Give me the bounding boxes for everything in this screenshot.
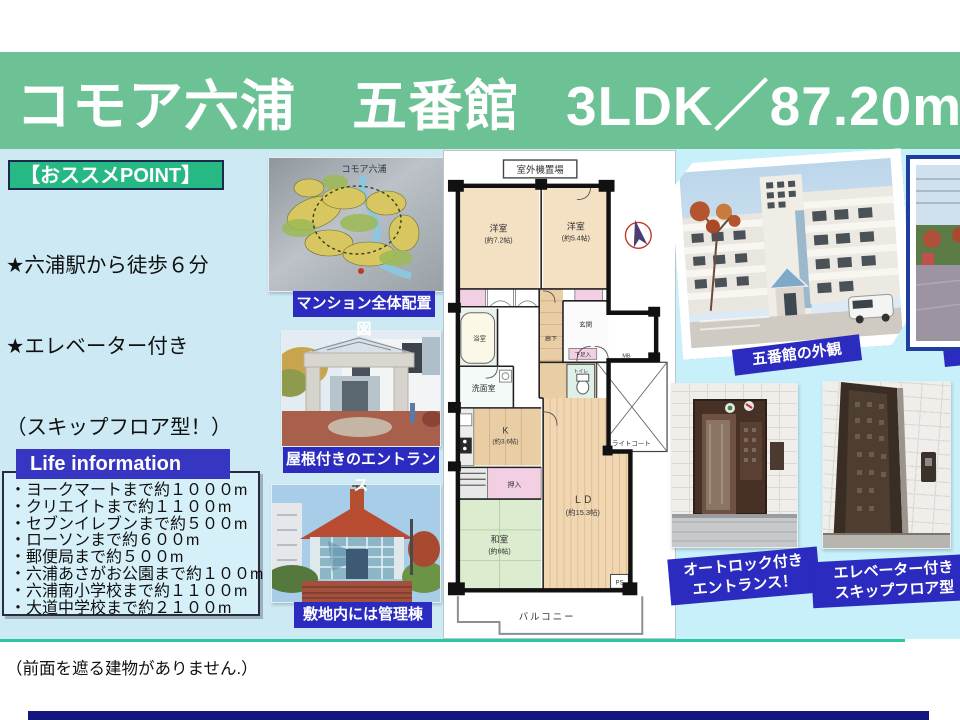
- management-building-art: [272, 485, 440, 602]
- label-living-size: (約15.3帖): [566, 507, 601, 517]
- floor-plan: 室外機置場 洋室 (約7.2帖) 洋室 (約5.4帖) 浴室 洗面室 廊下 玄関…: [443, 150, 676, 639]
- label-balcony: バルコニー: [519, 611, 576, 622]
- label-bedroom2-size: (約5.4帖): [562, 233, 590, 242]
- elevator-art: [823, 382, 950, 548]
- sign-title: コモア六浦: [341, 163, 386, 174]
- label-outdoor-unit: 室外機置場: [517, 164, 565, 175]
- teal-divider-line: [0, 639, 905, 642]
- recommend-line: （前面を遮る建物がありません.）: [6, 657, 270, 681]
- label-bath: 浴室: [473, 333, 486, 342]
- covered-entrance-caption: 屋根付きのエントランス: [283, 447, 439, 473]
- label-ps: PS: [616, 580, 624, 586]
- life-item: ・大道中学校まで約２１００m: [10, 601, 254, 618]
- recommend-line: （スキップフロア型！）: [6, 414, 270, 441]
- covered-entrance-photo: [281, 330, 441, 447]
- label-japanese-room: 和室: [491, 534, 509, 545]
- page-title: コモア六浦 五番館: [16, 61, 520, 141]
- label-kitchen-size: (約3.6帖): [492, 437, 518, 446]
- label-washroom: 洗面室: [472, 383, 496, 393]
- site-map-art: コモア六浦: [269, 158, 444, 291]
- label-bedroom1-size: (約7.2帖): [484, 235, 512, 244]
- covered-entrance-art: [282, 331, 440, 446]
- park-caption-sliver: [943, 347, 960, 367]
- life-item: ・郵便局まで約５００m: [10, 550, 254, 567]
- label-hallway: 廊下: [545, 334, 557, 342]
- label-toilet: トイレ: [573, 369, 588, 375]
- recommend-line: ★エレベーター付き: [6, 333, 270, 360]
- life-information-heading: Life information: [16, 449, 230, 479]
- label-entrance: 玄関: [579, 320, 592, 329]
- park-framed-photo: [906, 155, 960, 351]
- elevator-caption: エレベーター付き スキップフロア型: [811, 554, 960, 609]
- north-compass-icon: [625, 218, 651, 248]
- label-bedroom2: 洋室: [567, 220, 585, 231]
- floor-plan-drawing: 室外機置場 洋室 (約7.2帖) 洋室 (約5.4帖) 浴室 洗面室 廊下 玄関…: [444, 151, 675, 638]
- management-building-caption: 敷地内には管理棟: [294, 602, 432, 628]
- label-japanese-room-size: (約6帖): [488, 547, 510, 556]
- flyer-page: コモア六浦 五番館 3LDK／87.20m² 【おススメPOINT】 ★六浦駅か…: [0, 0, 960, 720]
- park-art: [916, 165, 960, 341]
- site-map-photo: コモア六浦: [268, 157, 445, 292]
- exterior-photo: [669, 148, 914, 360]
- management-building-photo: [271, 484, 441, 603]
- exterior-art: [679, 158, 903, 348]
- autolock-art: [672, 384, 797, 547]
- label-light-court: ライトコート: [612, 440, 651, 448]
- label-living: ＬＤ: [573, 495, 593, 506]
- recommend-line: ★六浦駅から徒歩６分: [6, 252, 270, 279]
- label-closet: 押入: [507, 480, 521, 489]
- page-title-spec: 3LDK／87.20m²: [566, 61, 960, 141]
- life-item: ・セブンイレブンまで約５００m: [10, 517, 254, 534]
- life-information-list: ・ヨークマートまで約１０００m ・クリエイトまで約１１００m ・セブンイレブンま…: [2, 471, 260, 616]
- life-item: ・六浦南小学校まで約１１００m: [10, 584, 254, 601]
- label-mb: MB: [622, 353, 631, 359]
- site-map-caption: マンション全体配置図: [293, 291, 435, 317]
- life-item: ・ローソンまで約６００m: [10, 533, 254, 550]
- recommend-heading: 【おススメPOINT】: [8, 160, 224, 190]
- label-kitchen: K: [502, 426, 508, 436]
- header-band: コモア六浦 五番館 3LDK／87.20m²: [0, 52, 960, 149]
- elevator-photo: [822, 381, 951, 549]
- label-bedroom1: 洋室: [490, 222, 508, 233]
- autolock-entrance-photo: [671, 383, 798, 548]
- life-item: ・クリエイトまで約１１００m: [10, 500, 254, 517]
- label-shoe-box: 下足入: [575, 351, 592, 358]
- life-item: ・六浦あさがお公園まで約１００m: [10, 567, 254, 584]
- life-item: ・ヨークマートまで約１０００m: [10, 483, 254, 500]
